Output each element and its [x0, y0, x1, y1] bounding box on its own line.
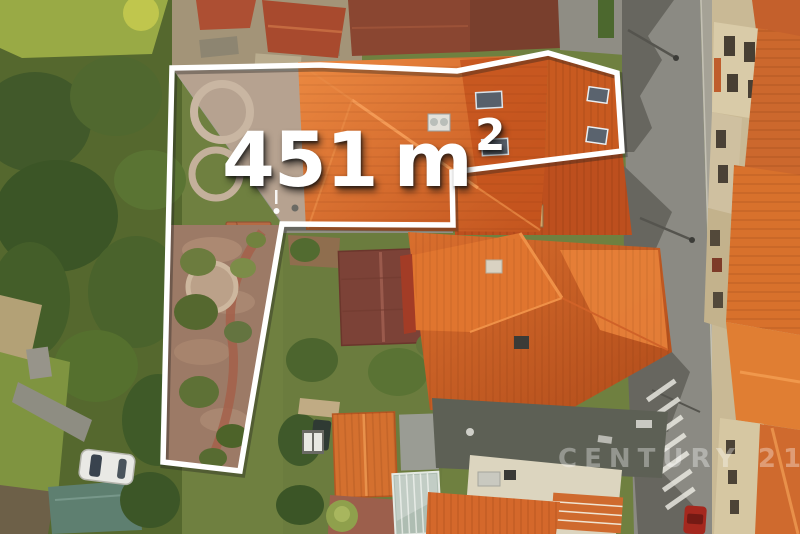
main-house: [298, 55, 632, 235]
orange-roof-outbuilding: [333, 412, 398, 498]
aerial-photo-background: [0, 0, 800, 534]
white-car: [78, 449, 135, 485]
right-buildings: [704, 0, 800, 534]
ac-unit: [428, 114, 450, 131]
screenshot-root: 451m2 CENTURY 21: [0, 0, 800, 534]
red-car: [683, 505, 707, 534]
